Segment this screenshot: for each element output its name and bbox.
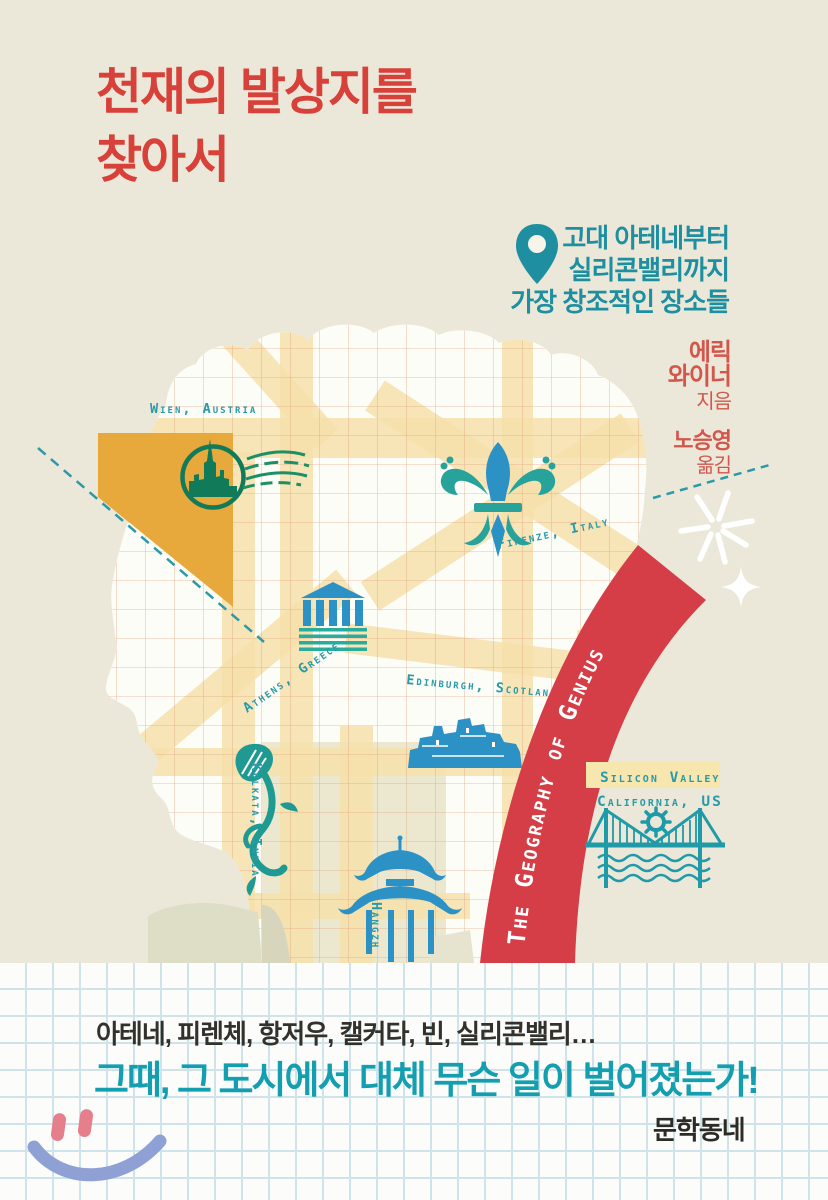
author-role: 지음 <box>668 391 731 413</box>
map-label-wien: Wien, Austria <box>150 401 257 417</box>
book-cover: Wien, Austria Firenze, Italy <box>0 0 828 1200</box>
map-label-kolkata: Kolkata, India <box>248 763 264 878</box>
credits-block: 에릭 와이너 지음 노승영 옮김 <box>668 341 731 477</box>
map-label-hangzhou: Hangzh <box>368 902 384 949</box>
footer-strip: 아테네, 피렌체, 항저우, 캘커타, 빈, 실리콘밸리… 그때, 그 도시에서… <box>0 963 828 1200</box>
footer-cities-line: 아테네, 피렌체, 항저우, 캘커타, 빈, 실리콘밸리… <box>96 1014 596 1051</box>
book-title: 천재의 발상지를 찾아서 <box>96 58 416 194</box>
translator-name: 노승영 <box>668 429 731 453</box>
map-label-silicon-valley: Silicon Valley <box>600 770 720 786</box>
publisher-logo: 문학동네 <box>653 1110 745 1147</box>
author-name-line1: 에릭 <box>668 341 731 365</box>
bridge-icon <box>585 808 725 888</box>
smiley-icon <box>22 1097 172 1200</box>
subtitle-line1: 고대 아테네부터 <box>510 222 729 254</box>
book-title-line1: 천재의 발상지를 <box>96 58 416 126</box>
footer-headline: 그때, 그 도시에서 대체 무슨 일이 벌어졌는가! <box>94 1049 758 1104</box>
map-label-california: California, US <box>597 794 723 810</box>
book-subtitle: 고대 아테네부터 실리콘밸리까지 가장 창조적인 장소들 <box>510 222 729 318</box>
subtitle-line3: 가장 창조적인 장소들 <box>510 286 729 318</box>
book-title-line2: 찾아서 <box>96 126 416 194</box>
author-name-line2: 와이너 <box>668 365 731 389</box>
subtitle-line2: 실리콘밸리까지 <box>510 254 729 286</box>
sun-gear-icon <box>642 808 670 836</box>
sparkle-icon <box>721 567 761 607</box>
water-waves <box>598 855 710 881</box>
translator-role: 옮김 <box>668 455 731 477</box>
starburst-icon <box>681 493 752 562</box>
